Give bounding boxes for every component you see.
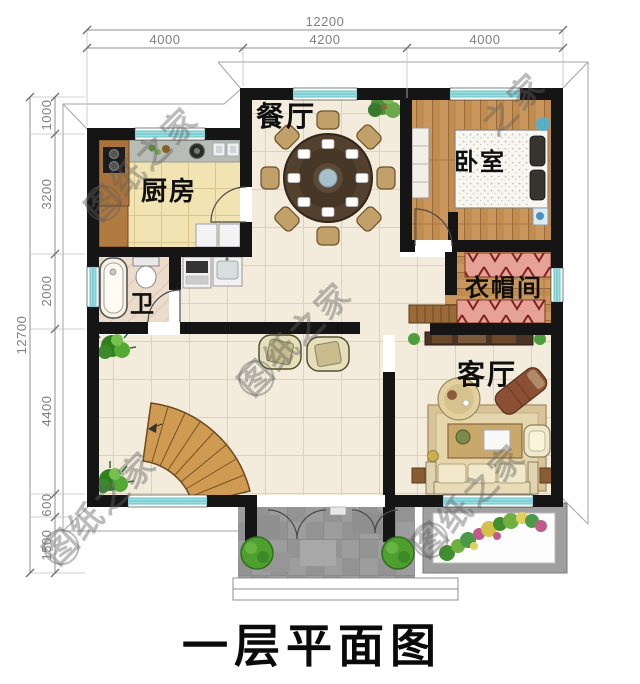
sofa-cushion [438,464,466,483]
dim-top-total: 12200 [306,14,345,29]
dim-top-seg3: 4000 [470,32,501,47]
pillow [530,136,545,166]
dim-top-seg2: 4200 [310,32,341,47]
dim-left-seg2: 3200 [39,179,54,210]
entry-steps [233,578,458,600]
dim-left-seg6: 1500 [39,530,54,561]
window [87,267,99,307]
bedroom-wardrobe [412,128,429,198]
dining-label: 餐厅 [256,101,316,132]
bedroom-label: 卧室 [454,148,506,176]
watermark-logo-icon [536,117,550,131]
fridge [196,224,217,247]
side-table [412,468,425,483]
dim-top-seg1: 4000 [150,32,181,47]
toilet-tank [133,257,159,266]
window [551,268,563,302]
dim-left-seg5: 600 [39,493,54,516]
plant-small [408,333,420,345]
bath-label: 卫 [130,291,156,318]
floor-plan-drawing: 餐厅 厨房 卧室 卫 衣帽间 客厅 图纸之家 之家 图纸之家 图纸之家 图纸之家… [0,0,640,684]
armchair [524,425,550,457]
pillow [530,170,545,200]
cloak-label: 衣帽间 [465,274,543,302]
window [293,88,357,100]
dim-left-seg3: 2000 [39,276,54,307]
living-label: 客厅 [457,358,517,390]
drawing-title: 一层平面图 [182,620,442,672]
toilet [136,266,156,288]
stove-sink-nook [183,257,242,288]
appliance [219,224,240,247]
entry-bush [241,537,273,569]
dim-left-seg4: 4400 [39,396,54,427]
dim-left-total: 12700 [14,316,29,355]
floor-plan-page: 餐厅 厨房 卧室 卫 衣帽间 客厅 图纸之家 之家 图纸之家 图纸之家 图纸之家… [0,0,640,684]
window [128,495,207,507]
dim-left-seg1: 1000 [39,100,54,131]
